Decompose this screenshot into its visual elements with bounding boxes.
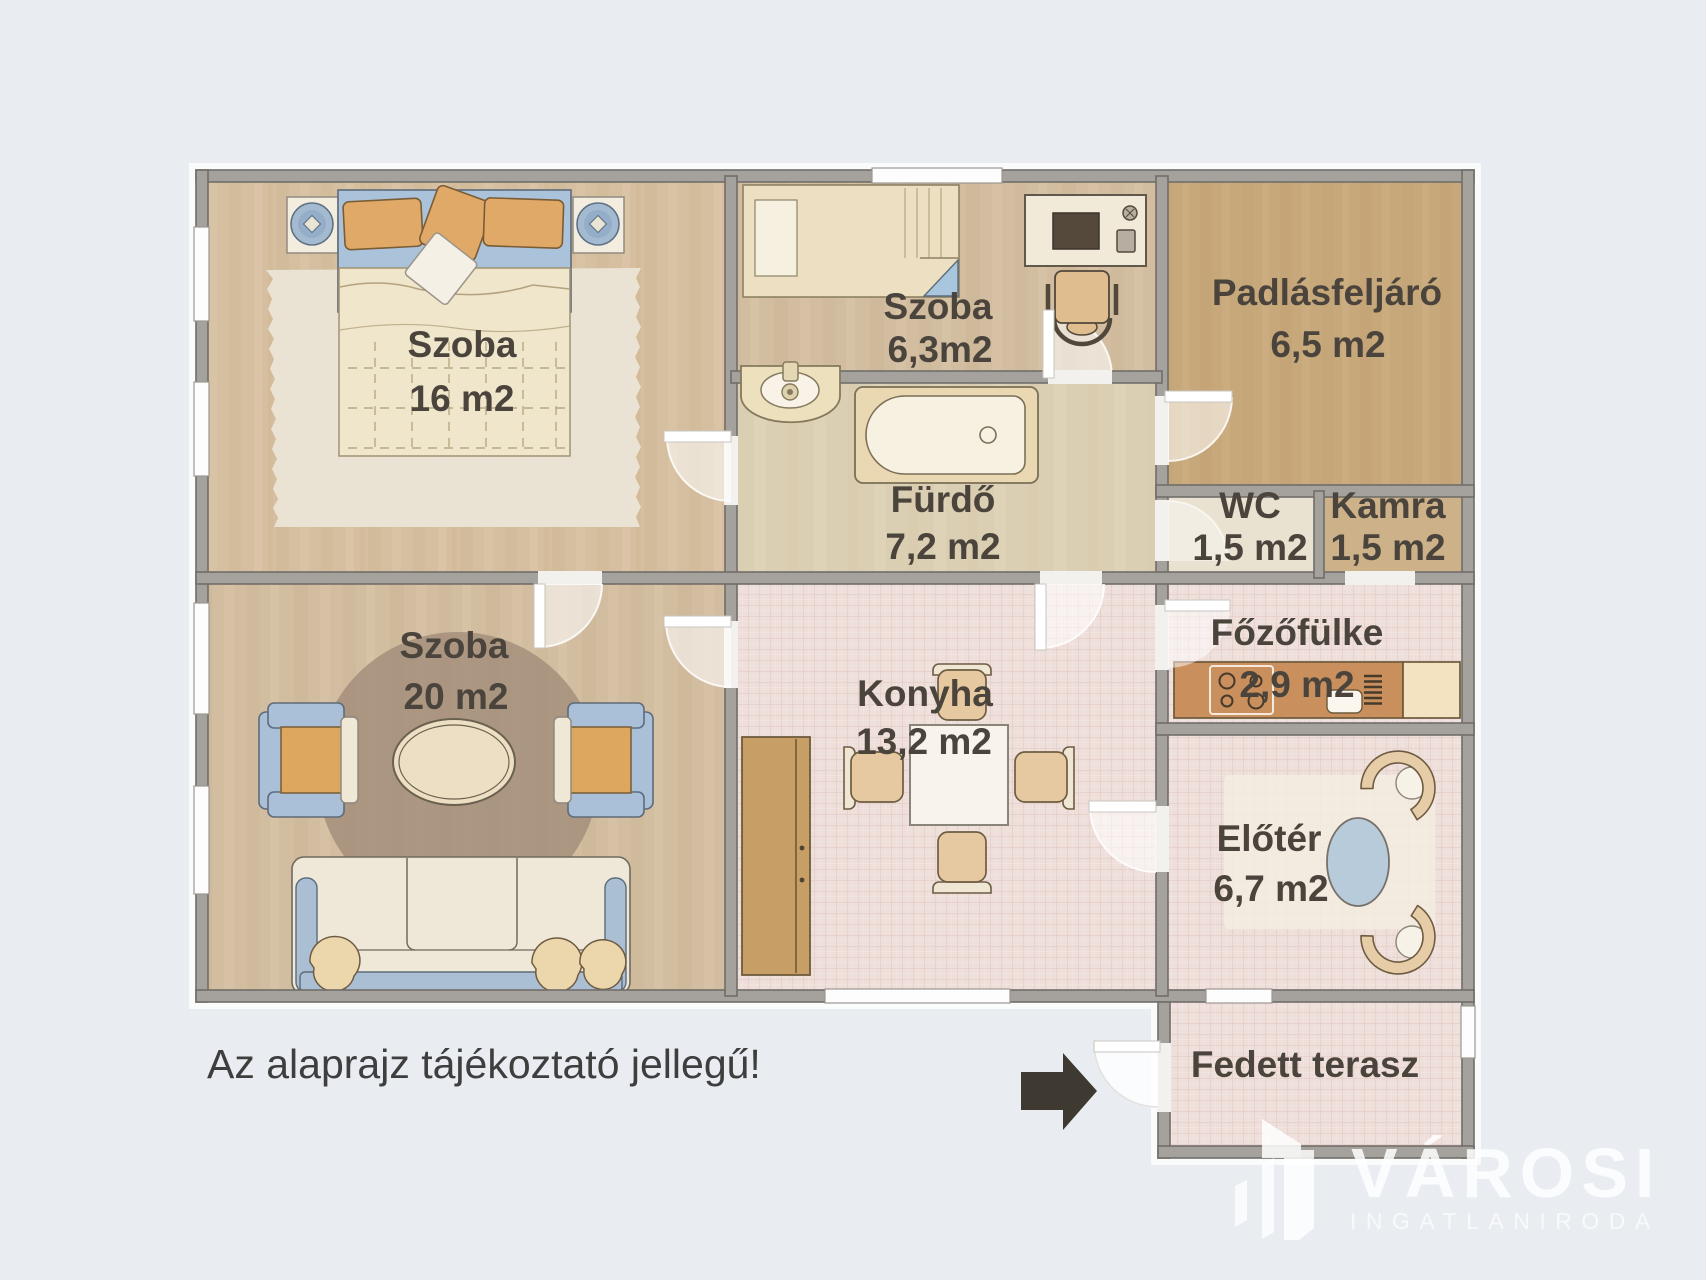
svg-text:7,2 m2: 7,2 m2 [885, 526, 1000, 567]
svg-text:1,5 m2: 1,5 m2 [1330, 527, 1445, 568]
svg-text:Szoba: Szoba [884, 286, 993, 327]
svg-text:16 m2: 16 m2 [410, 378, 515, 419]
svg-text:6,3m2: 6,3m2 [888, 329, 993, 370]
svg-text:Konyha: Konyha [857, 673, 993, 714]
svg-text:Főzőfülke: Főzőfülke [1211, 612, 1384, 653]
svg-text:Padlásfeljáró: Padlásfeljáró [1212, 272, 1442, 313]
svg-text:INGATLANIRODA: INGATLANIRODA [1350, 1208, 1660, 1234]
svg-text:Fedett terasz: Fedett terasz [1191, 1044, 1419, 1085]
svg-text:VÁROSI: VÁROSI [1351, 1134, 1661, 1212]
svg-text:20 m2: 20 m2 [404, 676, 509, 717]
svg-text:Szoba: Szoba [400, 625, 509, 666]
svg-text:6,7 m2: 6,7 m2 [1213, 868, 1328, 909]
svg-text:Fürdő: Fürdő [891, 479, 996, 520]
svg-text:WC: WC [1219, 485, 1281, 526]
svg-text:Kamra: Kamra [1330, 485, 1446, 526]
svg-text:1,5 m2: 1,5 m2 [1192, 527, 1307, 568]
svg-text:13,2 m2: 13,2 m2 [856, 721, 992, 762]
svg-text:6,5 m2: 6,5 m2 [1270, 324, 1385, 365]
svg-text:Előtér: Előtér [1217, 818, 1322, 859]
svg-text:Az alaprajz tájékoztató jelleg: Az alaprajz tájékoztató jellegű! [207, 1041, 761, 1087]
svg-text:Szoba: Szoba [408, 324, 517, 365]
svg-text:2,9 m2: 2,9 m2 [1239, 664, 1354, 705]
